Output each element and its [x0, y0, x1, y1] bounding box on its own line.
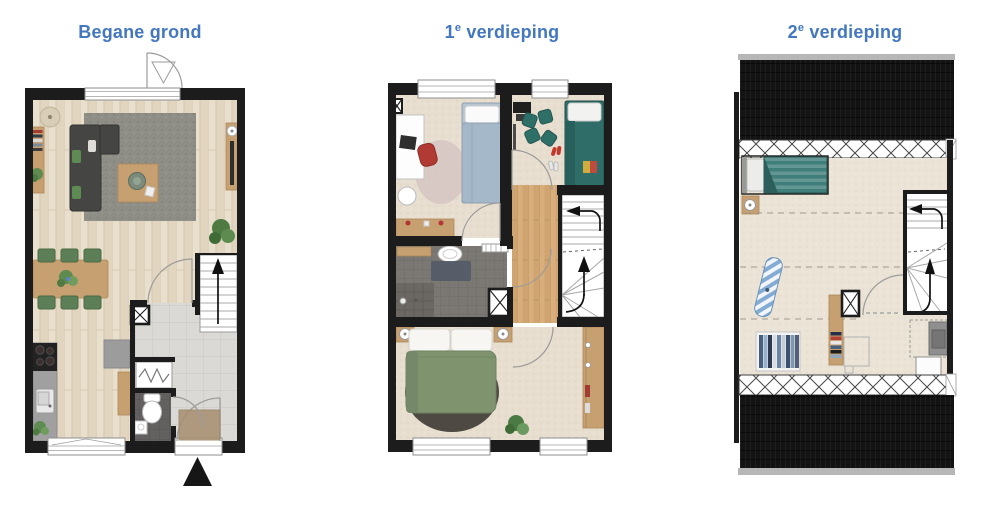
attic-nightstand	[742, 196, 759, 214]
attic-right-wall	[947, 140, 953, 395]
storage-rack	[756, 332, 800, 371]
bedroom1-window	[418, 80, 495, 98]
coffee-table	[118, 164, 158, 202]
shaft-second	[842, 291, 859, 316]
staircase-ground	[200, 255, 237, 332]
attic-bed	[742, 156, 828, 194]
floorplan-graphics	[0, 0, 994, 523]
wardrobe	[583, 327, 604, 428]
attic-left-wall	[734, 92, 739, 443]
bathroom-shelf	[397, 247, 431, 256]
single-bed-blue	[462, 103, 502, 203]
double-bed-green	[406, 329, 496, 413]
staircase-second	[903, 190, 947, 315]
kitchen-sink	[36, 389, 54, 413]
floor-lamp-center	[48, 115, 52, 119]
roof-plane-top	[740, 60, 954, 140]
washing-machine	[929, 322, 947, 355]
stool	[398, 187, 416, 205]
roof-ridge-top	[738, 54, 955, 60]
nightstand-right	[494, 327, 512, 342]
ground-floor-plan	[25, 53, 245, 486]
dining-chair	[61, 249, 78, 262]
kitchen-appliance-block	[104, 340, 130, 368]
kitchen-window	[48, 438, 125, 455]
dining-chair	[84, 296, 101, 309]
dining-chair	[61, 296, 78, 309]
single-bed-teal	[565, 101, 604, 186]
wc	[143, 394, 162, 423]
roof-edge-lattice-bottom	[739, 374, 956, 396]
back-door	[85, 53, 182, 100]
dining-table	[33, 260, 108, 298]
dining-chair	[38, 296, 55, 309]
master-window-right	[540, 438, 587, 455]
sideboard-right	[226, 123, 238, 190]
entrance-triangle	[183, 457, 212, 486]
floorplan-sheet: Begane grond 1e verdieping 2e verdieping	[0, 0, 994, 523]
radiator	[136, 362, 172, 388]
doormat	[179, 410, 220, 440]
bedroom2-window	[532, 80, 568, 98]
roof-plane-bottom	[740, 395, 954, 468]
bath-mat	[431, 261, 471, 281]
first-floor-plan	[388, 80, 612, 455]
kitchen-counter	[33, 343, 58, 441]
dining-chair	[84, 249, 101, 262]
second-floor-plan	[734, 54, 956, 475]
staircase-first	[562, 195, 604, 317]
dining-chair	[38, 249, 55, 262]
shower	[396, 283, 434, 317]
hand-basin	[135, 421, 147, 434]
master-window-left	[413, 438, 490, 455]
roof-ridge-bottom	[738, 468, 955, 475]
